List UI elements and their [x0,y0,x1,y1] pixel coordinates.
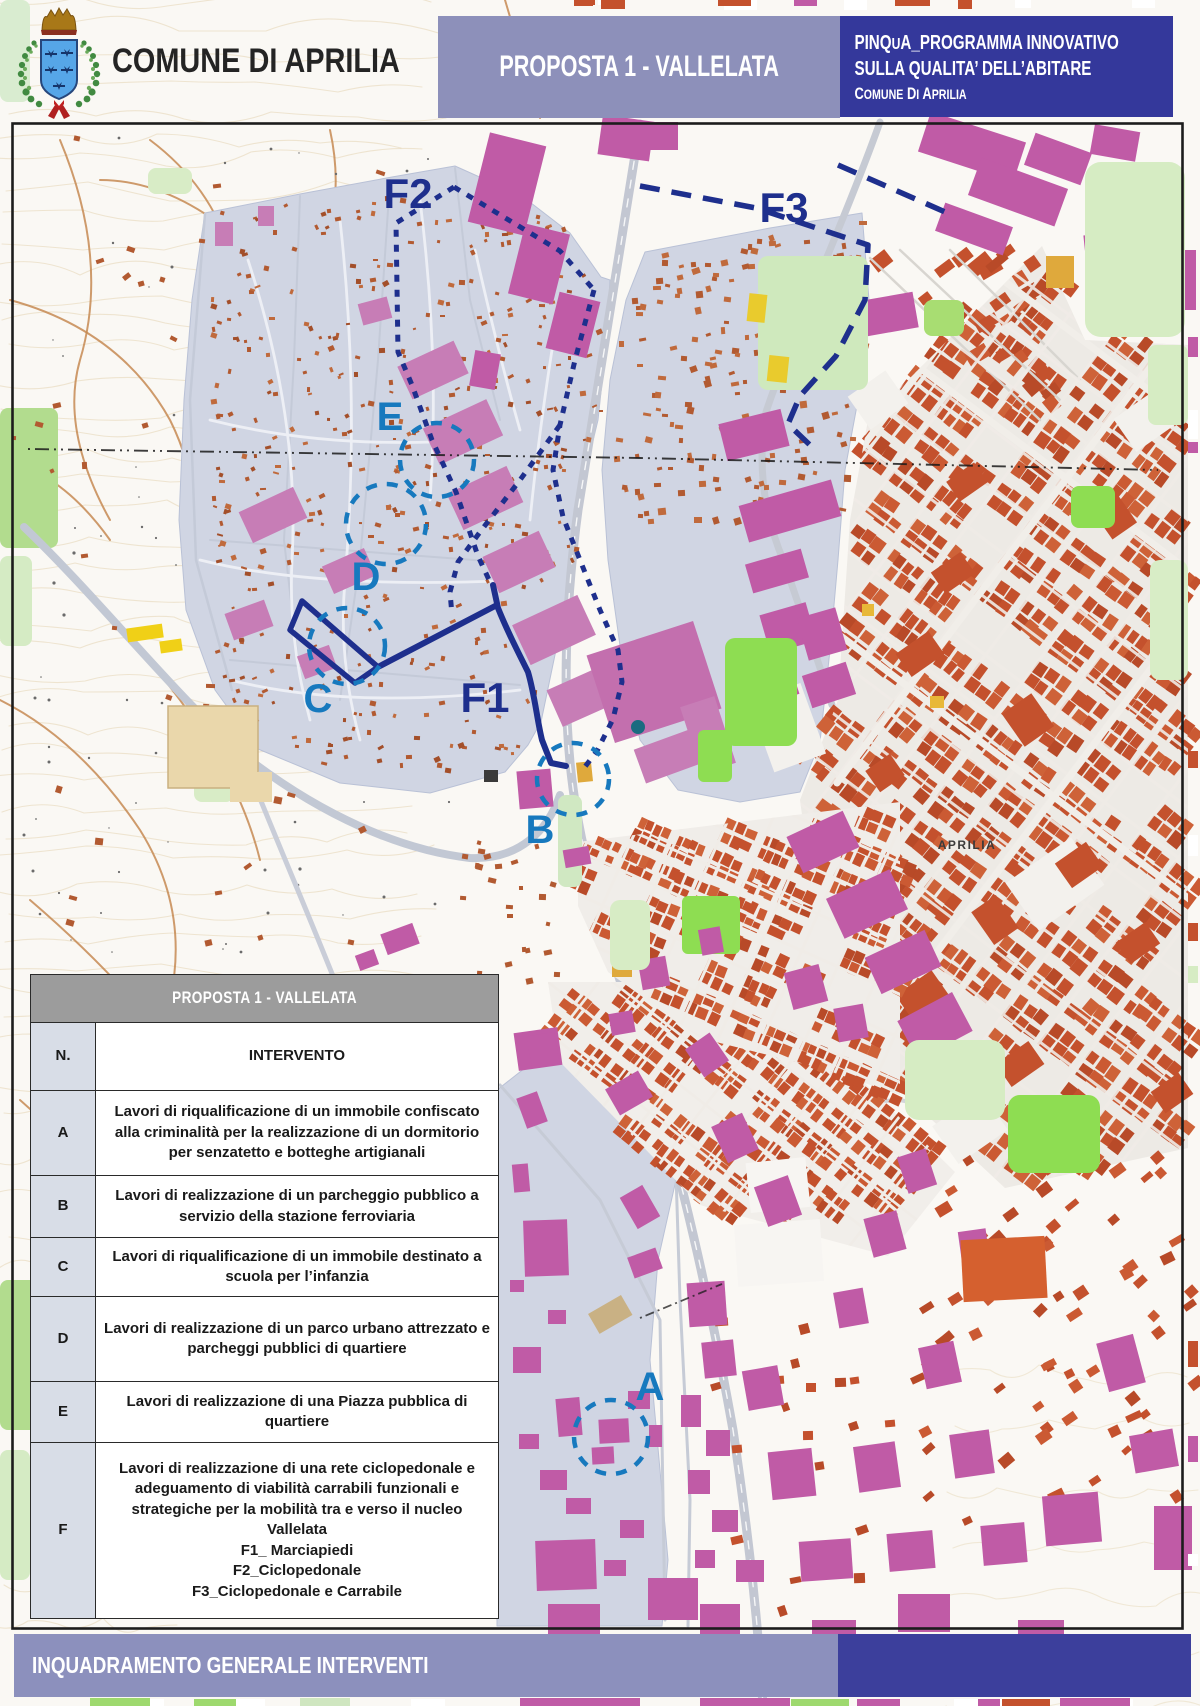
svg-text:F2: F2 [383,170,432,217]
svg-text:D: D [352,555,381,599]
svg-text:F3: F3 [759,184,808,231]
svg-text:F1: F1 [460,674,509,721]
svg-text:E: E [377,395,404,439]
svg-text:B: B [526,808,555,852]
svg-text:A: A [636,1365,665,1409]
svg-text:APRILIA: APRILIA [938,838,997,852]
svg-text:C: C [304,677,333,721]
